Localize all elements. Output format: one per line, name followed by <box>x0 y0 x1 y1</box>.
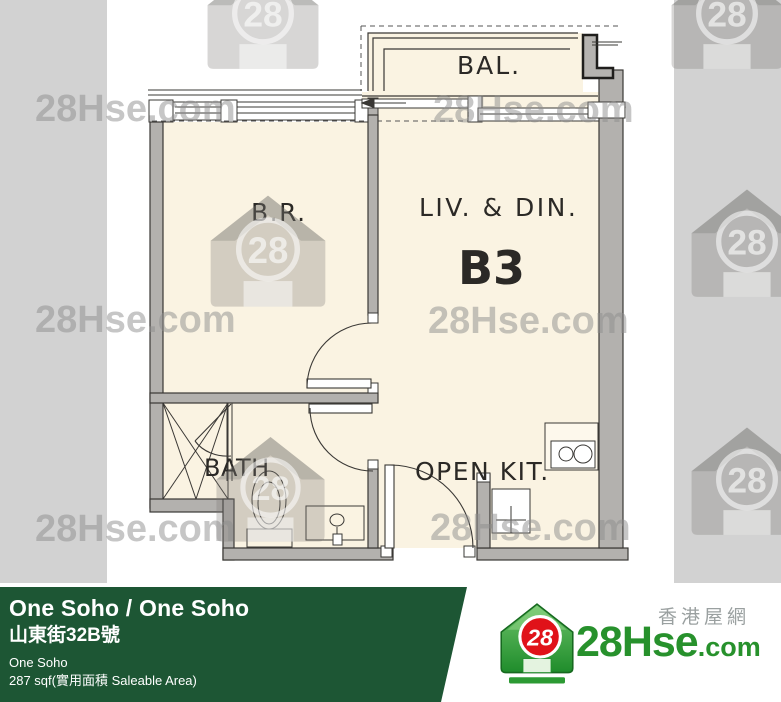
site-wordmark: 28Hse.com <box>576 618 761 667</box>
listing-title: One Soho / One Soho <box>9 594 467 622</box>
logo-number: 28 <box>526 624 553 650</box>
28hse-logo-block: 28 香港屋網 28Hse.com <box>490 596 781 702</box>
watermark-text: 28Hse.com <box>428 300 629 342</box>
screenshot-root: 28 <box>0 0 781 702</box>
bath-door-leaf <box>309 404 372 413</box>
28hse-house-logo-icon: 28 <box>498 601 576 685</box>
floor-plan: 28 <box>0 0 781 587</box>
watermark-text: 28Hse.com <box>35 299 236 341</box>
entrance-door-leaf <box>385 465 394 548</box>
kitchen-label: OPEN KIT. <box>415 457 550 486</box>
listing-address-zh: 山東街32B號 <box>9 622 467 650</box>
living-dining-label: LIV. & DIN. <box>419 193 578 222</box>
watermark-text: 28Hse.com <box>35 88 236 130</box>
balcony-corner-wall <box>583 35 613 78</box>
saleable-area: 287 sqf(實用面積 Saleable Area) <box>9 672 467 690</box>
footer-banner: One Soho / One Soho 山東街32B號 One Soho 287… <box>0 587 467 702</box>
site-wordmark-tld: .com <box>698 632 761 663</box>
estate-name: One Soho <box>9 653 467 672</box>
watermark-text: 28Hse.com <box>430 507 631 549</box>
unit-label: B3 <box>458 241 525 295</box>
watermark-text: 28Hse.com <box>433 89 634 131</box>
bedroom-door-leaf <box>307 379 371 388</box>
watermark-house-icon <box>672 0 781 69</box>
site-wordmark-main: 28Hse <box>576 618 698 667</box>
watermark-house-icon <box>208 0 319 69</box>
balcony-label: BAL. <box>457 51 521 80</box>
watermark-text: 28Hse.com <box>35 508 236 550</box>
